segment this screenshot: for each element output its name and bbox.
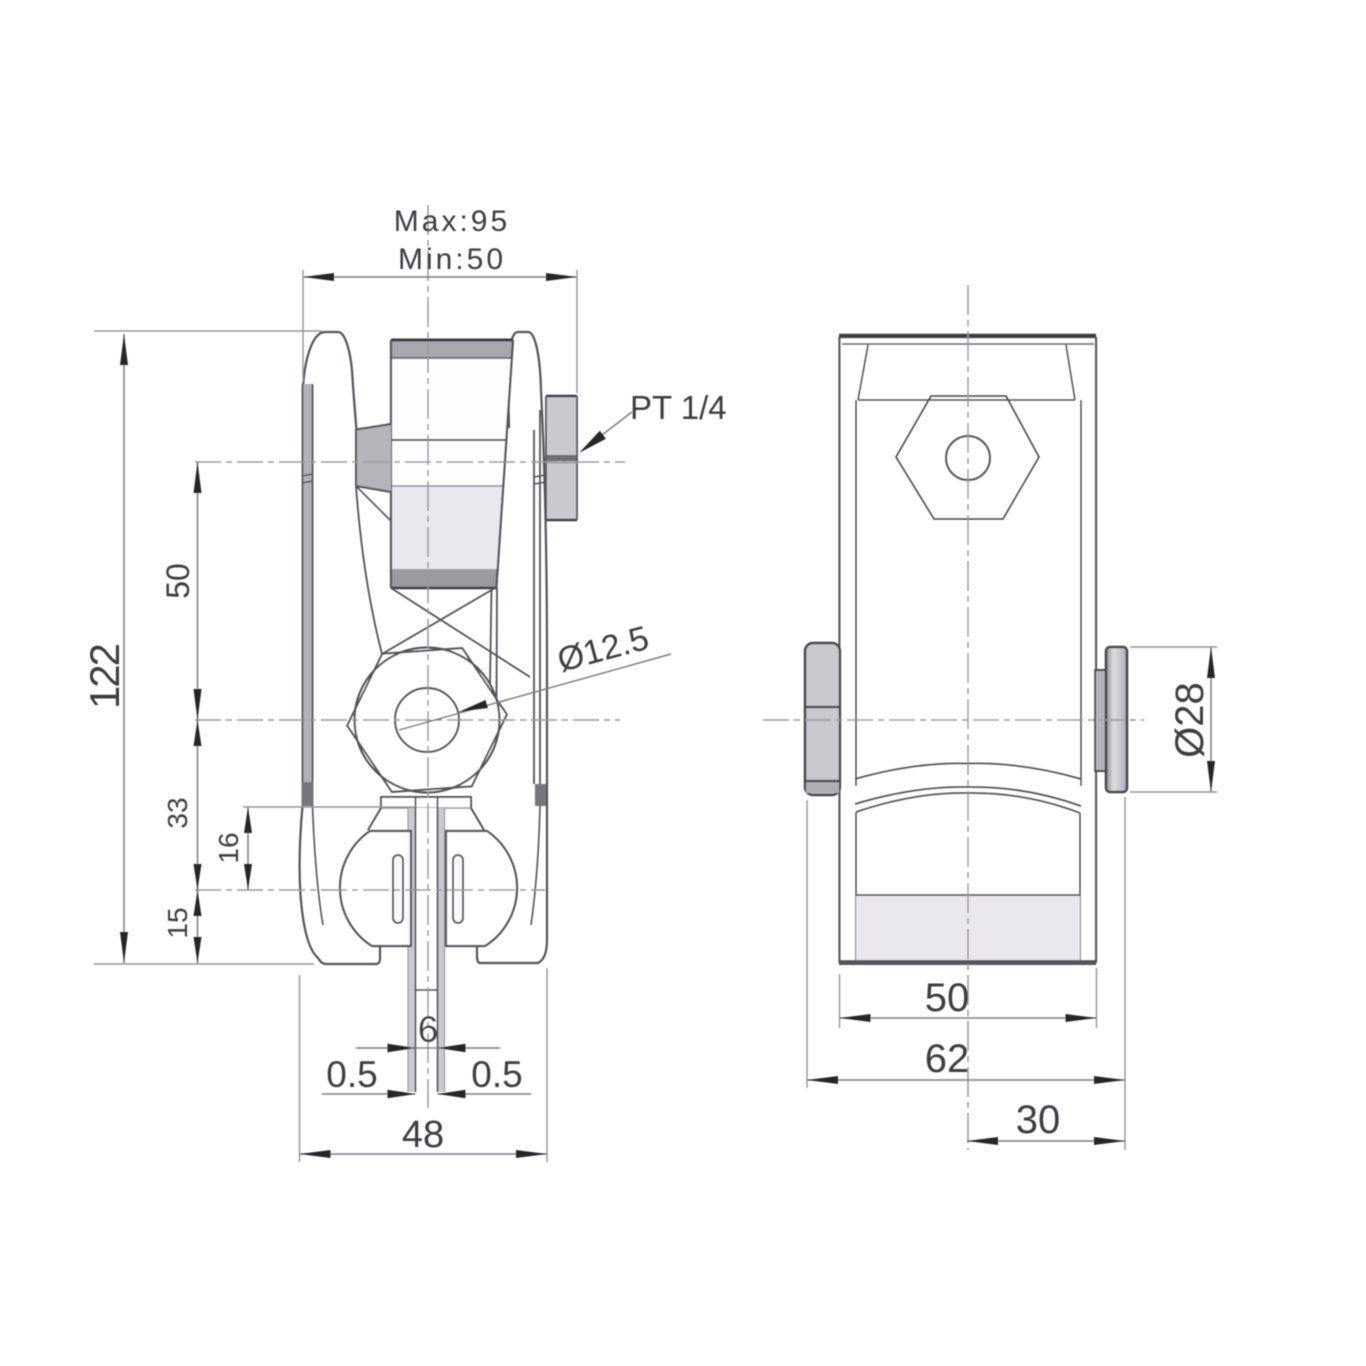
svg-text:Ø28: Ø28 <box>1168 682 1212 758</box>
svg-text:Max:95: Max:95 <box>394 205 510 238</box>
svg-text:122: 122 <box>81 644 128 709</box>
svg-text:0.5: 0.5 <box>471 1054 522 1095</box>
svg-text:62: 62 <box>925 1037 970 1081</box>
svg-text:Min:50: Min:50 <box>398 243 506 276</box>
svg-text:30: 30 <box>1016 1098 1061 1142</box>
svg-text:0.5: 0.5 <box>326 1054 377 1095</box>
svg-text:50: 50 <box>925 976 970 1020</box>
svg-text:PT 1/4: PT 1/4 <box>630 389 727 426</box>
svg-text:48: 48 <box>402 1114 444 1156</box>
svg-text:50: 50 <box>160 563 196 599</box>
svg-text:15: 15 <box>162 907 193 938</box>
svg-text:6: 6 <box>418 1009 439 1050</box>
svg-text:33: 33 <box>162 797 193 828</box>
svg-text:16: 16 <box>213 832 244 863</box>
